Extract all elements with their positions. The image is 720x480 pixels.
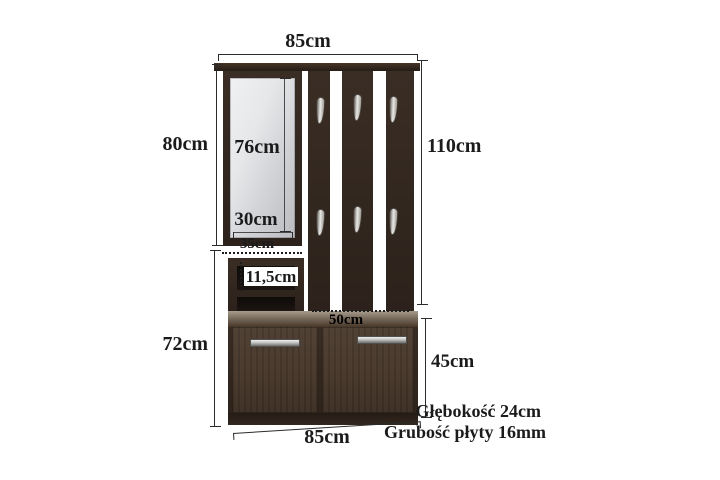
door-handle-icon — [250, 339, 300, 347]
dim-label-cabinet-front-height: 45cm — [431, 352, 481, 372]
dim-label-mirror-height: 76cm — [232, 137, 282, 158]
dim-line-panel-height — [421, 60, 422, 305]
furniture-dimension-diagram: 85cm 80cm 76cm 30cm 110cm 35cm 11,5cm 72… — [0, 0, 720, 480]
dim-label-shelf-width: 35cm — [230, 237, 284, 253]
dim-line-mirror-section-height — [216, 64, 217, 246]
dim-label-shelf-opening-height: 11,5cm — [244, 267, 298, 286]
dim-line-mirror-width — [233, 232, 293, 233]
dim-label-top-width: 85cm — [270, 31, 346, 52]
dim-label-mirror-width: 30cm — [230, 210, 282, 230]
board-thickness-note: Grubość płyty 16mm — [370, 423, 546, 442]
shelf-niche-bottom — [237, 297, 295, 311]
dim-line-mirror-height — [284, 78, 285, 232]
dim-label-mirror-section-height: 80cm — [156, 134, 208, 155]
dim-label-cabinet-inner-width: 50cm — [318, 313, 374, 329]
depth-note: Głębokość 24cm — [380, 402, 541, 421]
dim-line-top-width — [218, 54, 418, 55]
door-handle-icon — [357, 336, 407, 344]
dim-line-shelf-opening-height — [240, 262, 242, 291]
dim-label-panel-height: 110cm — [427, 136, 491, 157]
dim-label-bottom-width: 85cm — [295, 427, 359, 448]
dim-line-lower-section-height — [214, 250, 215, 427]
wardrobe-top-shelf — [214, 63, 420, 71]
dim-label-lower-section-height: 72cm — [156, 334, 208, 355]
